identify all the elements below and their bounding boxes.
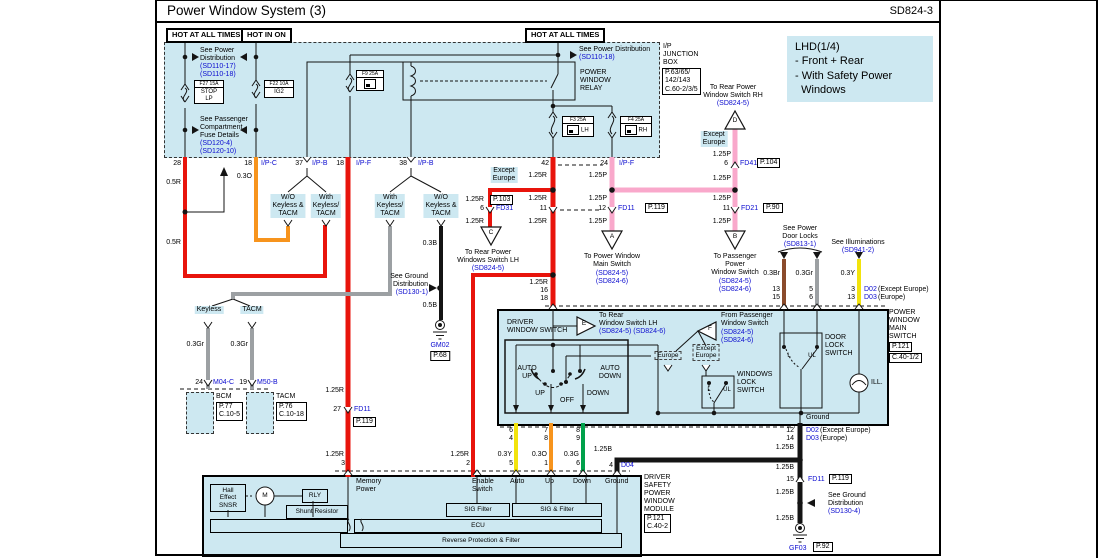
fd31-ref: P.103 — [490, 195, 513, 205]
msb-8: 8 — [544, 435, 548, 443]
main-switch-ref1: P.121 — [889, 342, 912, 352]
triangle-a-text: To Power Window Main Switch — [584, 253, 640, 269]
tacm-label: TACM — [276, 393, 295, 401]
modpin-2: 2 — [466, 460, 470, 468]
gauge-125p-d1: 1.25P — [713, 151, 731, 159]
gauge-125p-d3: 1.25P — [713, 195, 731, 203]
europe-label: Europe — [655, 351, 682, 360]
fuse-f27-name: STOP LP — [195, 88, 223, 103]
triangle-f-ref1: (SD824-5) — [721, 329, 753, 337]
fuse-f4: F4 25A RH — [620, 116, 652, 137]
pin-28: 28 — [173, 160, 181, 168]
ref-sd120-10: (SD120-10) — [200, 148, 236, 156]
mspin-5: 5 — [809, 286, 813, 294]
see-passenger-fuse: See Passenger Compartment Fuse Details — [200, 116, 248, 140]
mspin-18: 18 — [540, 295, 548, 303]
fd21-11: 11 — [723, 205, 730, 213]
triangle-a-ref1: (SD824-5) — [596, 270, 628, 278]
mspin-13b: 13 — [847, 294, 855, 302]
triangle-f-letter: F — [708, 325, 712, 332]
frame-bottom — [155, 554, 941, 556]
triangle-a-letter: A — [610, 233, 614, 240]
gauge-03o-2: 0.3O — [532, 451, 547, 459]
gauge-03y: 0.3Y — [841, 270, 855, 278]
driver-window-switch-label: DRIVER WINDOW SWITCH — [507, 319, 567, 335]
ref-sd110-17: (SD110-17) — [200, 63, 236, 71]
msb-8b: 8 — [576, 427, 580, 435]
gauge-125b-1: 1.25B — [776, 444, 794, 452]
fuse-f22-label: F22 10A — [265, 81, 293, 88]
fuse-f22: F22 10A IG2 — [264, 80, 294, 98]
mod-down: Down — [573, 478, 591, 486]
conn-m04c: M04-C — [213, 379, 234, 387]
triangle-d-ref: (SD824-5) — [717, 100, 749, 108]
gauge-03b: 0.3B — [423, 240, 437, 248]
see-ground-sd130-1: See Ground Distribution — [390, 273, 428, 289]
conn-d04: D04 — [621, 462, 634, 470]
d02-top-note: (Except Europe) — [878, 286, 929, 294]
gauge-125r-16: 1.25R — [529, 279, 548, 287]
mod-enable-switch: Enable Switch — [472, 478, 494, 494]
gauge-03y-2: 0.3Y — [498, 451, 512, 459]
mod-ground: Ground — [605, 478, 628, 486]
power-window-icon-lh — [567, 125, 579, 135]
pin-ipf2: I/P-F — [619, 160, 634, 168]
main-switch-title: POWER WINDOW MAIN SWITCH — [889, 309, 920, 341]
titlebar-rule — [156, 21, 941, 23]
fd11-ref-1: P.119 — [353, 417, 376, 427]
module-title: DRIVER SAFETY POWER WINDOW MODULE — [644, 474, 675, 514]
label-keyless: Keyless — [195, 306, 224, 314]
d02-bottom-note: (Except Europe) — [820, 427, 871, 435]
lhd-note: LHD(1/4) - Front + Rear - With Safety Po… — [795, 40, 892, 97]
wls-l: L — [707, 387, 710, 394]
triangle-b-ref2: (SD824-6) — [719, 286, 751, 294]
fuse-f9: F9 25A — [356, 70, 384, 91]
d03-top: D03 — [864, 294, 877, 302]
gauge-03g: 0.3G — [564, 451, 579, 459]
mod-auto: Auto — [510, 478, 524, 486]
gauge-125r-c2: 1.25R — [465, 218, 484, 226]
switch-auto-down: AUTO DOWN — [599, 365, 621, 381]
see-power-distribution-right: See Power Distribution — [579, 46, 650, 54]
fd11-name-3: FD11 — [808, 476, 825, 484]
fd41-6: 6 — [724, 160, 728, 168]
page-title: Power Window System (3) — [167, 3, 326, 19]
triangle-b-ref1: (SD824-5) — [719, 278, 751, 286]
fuse-f4-label: F4 25A — [621, 117, 651, 124]
gauge-125r-42b: 1.25R — [528, 195, 547, 203]
relay-label: POWER WINDOW RELAY — [580, 69, 611, 93]
fd11-ref-2: P.119 — [645, 203, 668, 213]
fd21-name: FD21 — [741, 205, 758, 213]
variant-wo-2: W/O Keyless & TACM — [423, 194, 458, 218]
bcm-ref: P.77 C.10-5 — [216, 402, 243, 421]
fuse-f27: F27 15A STOP LP — [194, 80, 224, 104]
ground-gm02-ref: P.68 — [430, 351, 450, 361]
ref-sd130-4: (SD130-4) — [828, 508, 860, 516]
fuse-f4-name: RH — [639, 128, 648, 134]
msb-14: 14 — [786, 435, 794, 443]
gauge-125p-a3: 1.25P — [589, 218, 607, 226]
label-tacm: TACM — [240, 306, 263, 314]
modpin-1: 1 — [544, 460, 548, 468]
bcm-label: BCM — [216, 393, 232, 401]
conn-m50b: M50-B — [257, 379, 278, 387]
switch-up: UP — [535, 390, 545, 398]
ground-gf03: GF03 — [789, 545, 807, 553]
gauge-125p-d2: 1.25P — [713, 175, 731, 183]
ill-label: ILL. — [871, 379, 883, 387]
pin-19-tacm: 19 — [239, 379, 247, 387]
fd41-name: FD41 — [740, 160, 757, 168]
d03-bottom: D03 — [806, 435, 819, 443]
power-window-icon — [364, 79, 376, 89]
gauge-03gr-3: 0.3Gr — [795, 270, 813, 278]
pin-37: 37 — [295, 160, 303, 168]
gauge-03gr-1: 0.3Gr — [186, 341, 204, 349]
triangle-c-ref: (SD824-5) — [472, 265, 504, 273]
gauge-125p-d4: 1.25P — [713, 218, 731, 226]
gauge-03br: 0.3Br — [763, 270, 780, 278]
page-code: SD824-3 — [890, 4, 933, 18]
see-power-door-locks: See Power Door Locks — [782, 225, 817, 241]
modpin-6: 6 — [576, 460, 580, 468]
gauge-125r-mem2: 1.25R — [325, 451, 344, 459]
gauge-125r-c1: 1.25R — [465, 196, 484, 204]
triangle-f-text: From Passenger Window Switch — [721, 312, 773, 328]
variant-with-1: With Keyless/ TACM — [311, 194, 341, 218]
ref-sd110-18: (SD110-18) — [200, 71, 236, 79]
fuse-f3: F3 25A LH — [562, 116, 594, 137]
fd-11-main: 11 — [540, 205, 547, 213]
triangle-e-letter: E — [582, 320, 586, 327]
module-ref: P.121 C.40-2 — [644, 514, 671, 533]
fuse-f3-label: F3 25A — [563, 117, 593, 124]
d03-bottom-note: (Europe) — [820, 435, 847, 443]
triangle-c-text: To Rear Power Windows Switch LH — [457, 249, 519, 265]
pin-ipb: I/P-B — [312, 160, 328, 168]
msb-9: 9 — [576, 435, 580, 443]
ip-junction-box-label: I/P JUNCTION BOX — [663, 43, 698, 67]
ground-label-mainbox: Ground — [806, 414, 829, 422]
except-europe-42: Except Europe — [491, 167, 518, 183]
switch-down: DOWN — [587, 390, 609, 398]
fd11-27: 27 — [333, 406, 341, 414]
mspin-16: 16 — [540, 287, 548, 295]
mspin-3: 3 — [851, 286, 855, 294]
see-power-distribution-left: See Power Distribution — [200, 47, 235, 63]
ref-sd120-4: (SD120-4) — [200, 140, 232, 148]
triangle-f-ref2: (SD824-6) — [721, 337, 753, 345]
mspin-13: 13 — [772, 286, 780, 294]
gauge-05r-2: 0.5R — [166, 239, 181, 247]
msb-7: 7 — [544, 427, 548, 435]
pin-42: 42 — [541, 160, 549, 168]
mod-up: Up — [545, 478, 554, 486]
door-lock-switch-label: DOOR LOCK SWITCH — [825, 334, 853, 358]
d02-bottom: D02 — [806, 427, 819, 435]
fd31-name: FD31 — [496, 205, 513, 213]
variant-wo-1: W/O Keyless & TACM — [270, 194, 305, 218]
fuse-f27-label: F27 15A — [195, 81, 223, 88]
wls-ul: UL — [723, 387, 731, 394]
gauge-05b: 0.5B — [423, 302, 437, 310]
triangle-e-text: To Rear Window Switch LH — [599, 312, 657, 328]
pin-18f: 18 — [336, 160, 344, 168]
msb-12: 12 — [786, 427, 794, 435]
switch-auto-up: AUTO UP — [517, 365, 536, 381]
ip-junction-box-ref: P.63/65/ 142/143 C.60-2/3/5 — [662, 68, 701, 95]
see-ground-sd130-4: See Ground Distribution — [828, 492, 866, 508]
ref-sd130-1: (SD130-1) — [396, 289, 428, 297]
wire-graphics — [0, 0, 1100, 558]
see-illuminations: See Illuminations — [831, 239, 884, 247]
gauge-125r-mem1: 1.25R — [325, 387, 344, 395]
except-europe-label: Except Europe — [693, 344, 720, 361]
fuse-f22-name: IG2 — [265, 88, 293, 97]
ground-gm02: GM02 — [430, 342, 449, 350]
d03-top-note: (Europe) — [878, 294, 905, 302]
gauge-03o: 0.3O — [237, 173, 252, 181]
pin-ipb2: I/P-B — [418, 160, 434, 168]
gauge-125p-a2: 1.25P — [589, 195, 607, 203]
gauge-125r-42c: 1.25R — [528, 218, 547, 226]
modpin-4: 4 — [609, 462, 613, 470]
switch-off: OFF — [560, 397, 574, 405]
gauge-125b-4: 1.25B — [776, 515, 794, 523]
modpin-5: 5 — [509, 460, 513, 468]
pin-24: 24 — [600, 160, 608, 168]
fd11-15: 15 — [786, 476, 794, 484]
pin-24-bcm: 24 — [195, 379, 203, 387]
ground-gf03-ref: P.92 — [813, 542, 833, 552]
gauge-125r-en: 1.25R — [450, 451, 469, 459]
ref-sd813-1: (SD813-1) — [784, 241, 816, 249]
hot-at-all-times-left: HOT AT ALL TIMES — [166, 28, 246, 43]
except-europe-d: Except Europe — [701, 131, 728, 147]
ref-sd941-2: (SD941-2) — [842, 247, 874, 255]
msb-6: 6 — [509, 427, 513, 435]
tacm-ref: P.76 C.10-18 — [276, 402, 307, 421]
pin-38: 38 — [399, 160, 407, 168]
ref-sd110-18b: (SD110-18) — [579, 54, 615, 62]
pin-ipf: I/P-F — [356, 160, 371, 168]
fuse-f9-label: F9 25A — [357, 71, 383, 78]
dls-ul: UL — [808, 353, 816, 360]
frame-top — [155, 0, 1098, 1]
fd11-ref-3: P.119 — [829, 474, 852, 484]
msb-4: 4 — [509, 435, 513, 443]
hot-in-on: HOT IN ON — [241, 28, 292, 43]
mspin-6: 6 — [809, 294, 813, 302]
dls-l: L — [787, 353, 790, 360]
pin-ipc: I/P-C — [261, 160, 277, 168]
modpin-3: 3 — [341, 460, 345, 468]
pin-18c: 18 — [244, 160, 252, 168]
fd11-name-1: FD11 — [354, 406, 371, 414]
fd41-ref: P.104 — [757, 158, 780, 168]
fd11-12: 12 — [598, 205, 606, 213]
gauge-05r-1: 0.5R — [166, 179, 181, 187]
variant-with-2: With Keyless/ TACM — [375, 194, 405, 218]
gauge-125b-2: 1.25B — [776, 464, 794, 472]
gauge-125p-a1: 1.25P — [589, 172, 607, 180]
frame-right — [939, 0, 941, 556]
fd31-6: 6 — [480, 205, 484, 213]
triangle-c-letter: C — [489, 229, 494, 236]
fd11-name-2: FD11 — [618, 205, 635, 213]
windows-lock-switch-label: WINDOWS LOCK SWITCH — [737, 371, 772, 395]
triangle-d-text: To Rear Power Window Switch RH — [703, 84, 763, 100]
gauge-125r-42a: 1.25R — [528, 172, 547, 180]
mspin-15: 15 — [772, 294, 780, 302]
frame-left — [155, 0, 157, 556]
main-switch-ref2: C.40-1/2 — [889, 353, 922, 363]
motor-letter: M — [262, 492, 267, 499]
reference-arrows — [192, 51, 863, 507]
hot-at-all-times-right: HOT AT ALL TIMES — [525, 28, 605, 43]
triangle-b-letter: B — [733, 233, 737, 240]
gauge-03gr-2: 0.3Gr — [230, 341, 248, 349]
triangle-d-letter: D — [733, 117, 738, 124]
gauge-125b-3: 1.25B — [776, 489, 794, 497]
fuse-f3-name: LH — [581, 128, 589, 134]
fd21-ref: P.90 — [763, 203, 783, 213]
triangle-e-ref: (SD824-5) (SD824-6) — [599, 328, 666, 336]
triangle-b-text: To Passenger Power Window Switch — [711, 253, 758, 277]
page-edge-right — [1096, 0, 1098, 558]
wiring-diagram-page: Power Window System (3) SD824-3 HOT AT A… — [0, 0, 1100, 558]
d02-top: D02 — [864, 286, 877, 294]
mod-memory-power: Memory Power — [356, 478, 381, 494]
triangle-a-ref2: (SD824-6) — [596, 278, 628, 286]
power-window-icon-rh — [625, 125, 637, 135]
gauge-125b-d04: 1.25B — [594, 446, 612, 454]
